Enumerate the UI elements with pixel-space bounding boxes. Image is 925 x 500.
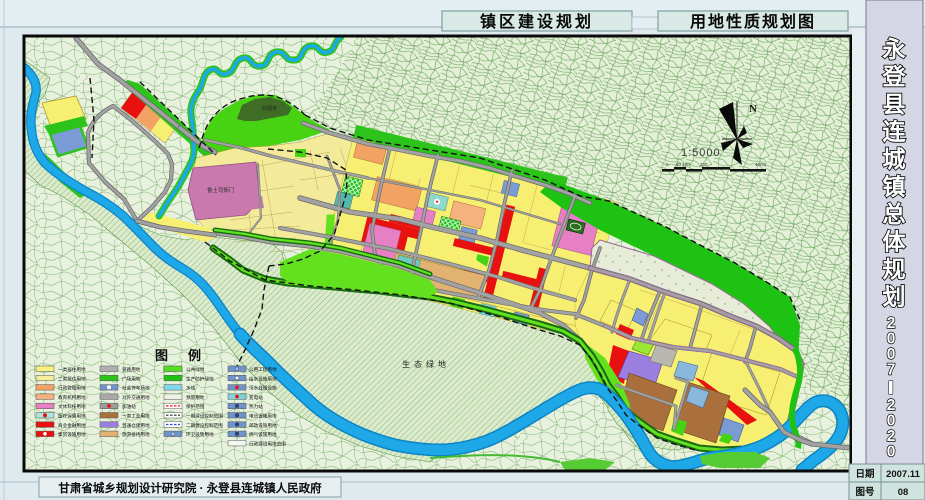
svg-text:日期: 日期 — [855, 468, 874, 480]
svg-text:广场用地: 广场用地 — [122, 375, 141, 382]
svg-text:50 100: 50 100 — [676, 162, 690, 167]
svg-text:热力站: 热力站 — [249, 403, 263, 410]
svg-text:200: 200 — [700, 162, 708, 167]
svg-text:道路用地: 道路用地 — [122, 366, 141, 373]
svg-text:7: 7 — [887, 362, 896, 379]
svg-text:县: 县 — [883, 91, 906, 117]
svg-text:体: 体 — [883, 229, 907, 255]
svg-text:公共绿地: 公共绿地 — [186, 366, 205, 373]
svg-text:旅游接待用地: 旅游接待用地 — [122, 431, 150, 438]
svg-text:二期建设控制范围: 二期建设控制范围 — [186, 422, 223, 429]
svg-text:鲁土司衙门: 鲁土司衙门 — [207, 186, 235, 194]
svg-text:0: 0 — [887, 413, 896, 430]
svg-text:公用工程用地: 公用工程用地 — [249, 366, 277, 373]
svg-text:总: 总 — [883, 201, 906, 227]
svg-text:变电站: 变电站 — [249, 394, 263, 401]
svg-text:燃气设施用地: 燃气设施用地 — [249, 431, 277, 438]
svg-text:污水处理设施: 污水处理设施 — [249, 385, 277, 392]
svg-text:水域: 水域 — [186, 385, 196, 391]
svg-text:2: 2 — [887, 315, 896, 332]
svg-text:教育机构用地: 教育机构用地 — [58, 394, 86, 401]
svg-text:文体科技用地: 文体科技用地 — [58, 403, 86, 410]
svg-text:一期建设控制范围: 一期建设控制范围 — [186, 413, 223, 420]
svg-text:行政建设用地范围: 行政建设用地范围 — [249, 440, 286, 447]
svg-text:0: 0 — [887, 331, 896, 348]
svg-text:加油站: 加油站 — [122, 403, 136, 410]
svg-text:08: 08 — [898, 487, 909, 498]
svg-text:环卫设施用地: 环卫设施用地 — [186, 431, 214, 438]
svg-text:行政管理用地: 行政管理用地 — [58, 385, 86, 392]
svg-text:集贸设施用地: 集贸设施用地 — [58, 431, 86, 438]
svg-text:一类居住用地: 一类居住用地 — [58, 366, 86, 373]
svg-text:划: 划 — [883, 284, 906, 310]
svg-text:商业金融用地: 商业金融用地 — [58, 422, 86, 429]
svg-text:普通仓储用地: 普通仓储用地 — [122, 422, 150, 429]
svg-text:规: 规 — [883, 256, 906, 282]
svg-text:给水设施用地: 给水设施用地 — [249, 375, 277, 382]
svg-text:生产防护绿地: 生产防护绿地 — [186, 375, 214, 382]
svg-text:邮政设施用地: 邮政设施用地 — [249, 422, 277, 429]
svg-text:图号: 图号 — [855, 487, 875, 498]
svg-text:N: N — [749, 103, 757, 115]
svg-text:预留用地: 预留用地 — [186, 394, 205, 401]
svg-text:2: 2 — [887, 428, 896, 445]
svg-text:2: 2 — [887, 397, 896, 414]
svg-text:永: 永 — [883, 36, 906, 62]
svg-text:妙因寺: 妙因寺 — [262, 105, 277, 112]
svg-text:甘肃省城乡规划设计研究院 · 永登县连城镇人民政府: 甘肃省城乡规划设计研究院 · 永登县连城镇人民政府 — [58, 481, 322, 495]
svg-text:用地性质规划图: 用地性质规划图 — [690, 12, 816, 31]
svg-text:镇: 镇 — [883, 174, 906, 200]
svg-text:2007.11: 2007.11 — [886, 469, 921, 480]
svg-text:社会停车场地: 社会停车场地 — [122, 385, 150, 392]
svg-text:一类工业用地: 一类工业用地 — [122, 413, 150, 420]
svg-text:图例: 图例 — [155, 348, 221, 363]
svg-text:二类居住用地: 二类居住用地 — [58, 375, 86, 382]
svg-text:城: 城 — [883, 146, 906, 172]
svg-text:1:5000: 1:5000 — [681, 147, 721, 159]
svg-text:连: 连 — [883, 119, 907, 145]
svg-text:电信设施用地: 电信设施用地 — [249, 413, 277, 420]
svg-text:对外交通用地: 对外交通用地 — [122, 394, 150, 401]
svg-text:0: 0 — [887, 444, 896, 461]
svg-text:保护范围: 保护范围 — [186, 403, 205, 410]
svg-text:0: 0 — [887, 346, 896, 363]
svg-text:医疗保健用地: 医疗保健用地 — [58, 413, 86, 420]
svg-text:400m: 400m — [755, 162, 767, 167]
svg-text:生态绿地: 生态绿地 — [402, 359, 450, 369]
svg-text:登: 登 — [882, 64, 907, 90]
svg-text:镇区建设规划: 镇区建设规划 — [480, 12, 594, 31]
